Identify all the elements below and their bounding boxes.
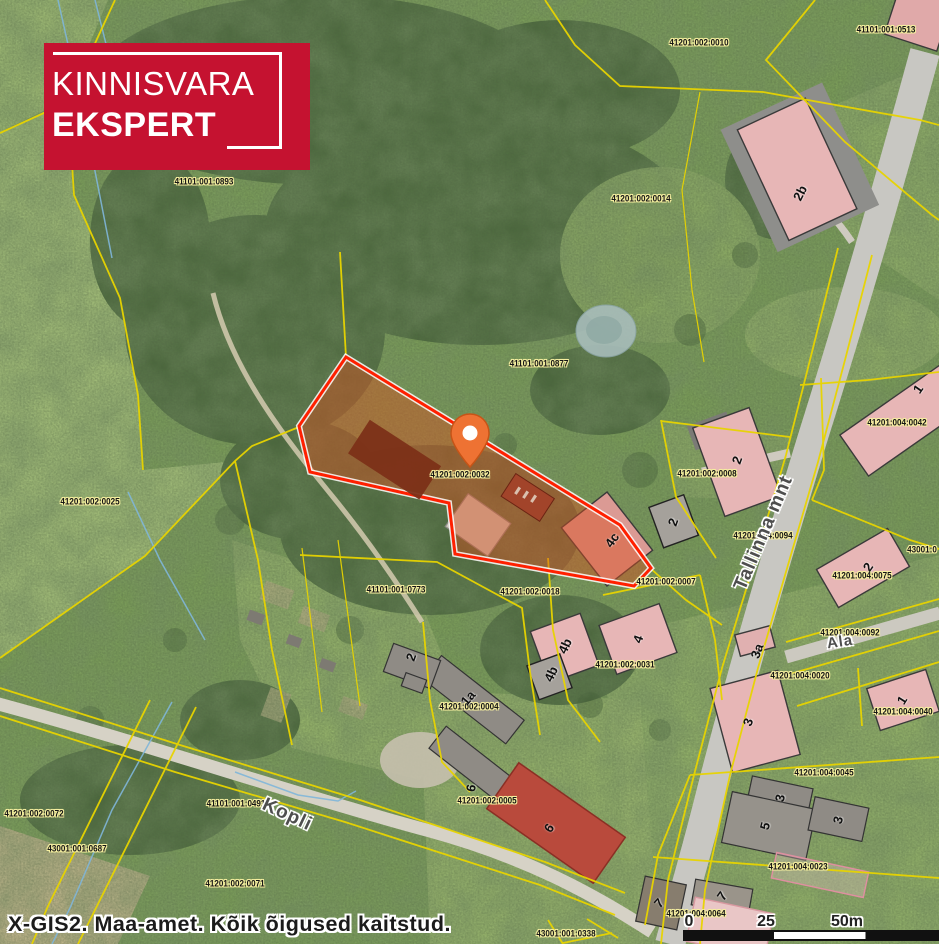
location-pin-icon	[448, 412, 492, 470]
map-attribution: X-GIS2. Maa-amet. Kõik õigused kaitstud.	[8, 912, 451, 937]
logo-frame	[53, 52, 282, 55]
map-viewport[interactable]: 41201:002:001041101:001:051341101:001:08…	[0, 0, 939, 944]
logo-frame	[279, 52, 282, 149]
logo-text-line2: EKSPERT	[52, 106, 216, 145]
logo-text-line1: KINNISVARA	[52, 65, 254, 103]
logo-frame	[227, 146, 282, 149]
brand-logo: KINNISVARA EKSPERT	[44, 43, 310, 170]
